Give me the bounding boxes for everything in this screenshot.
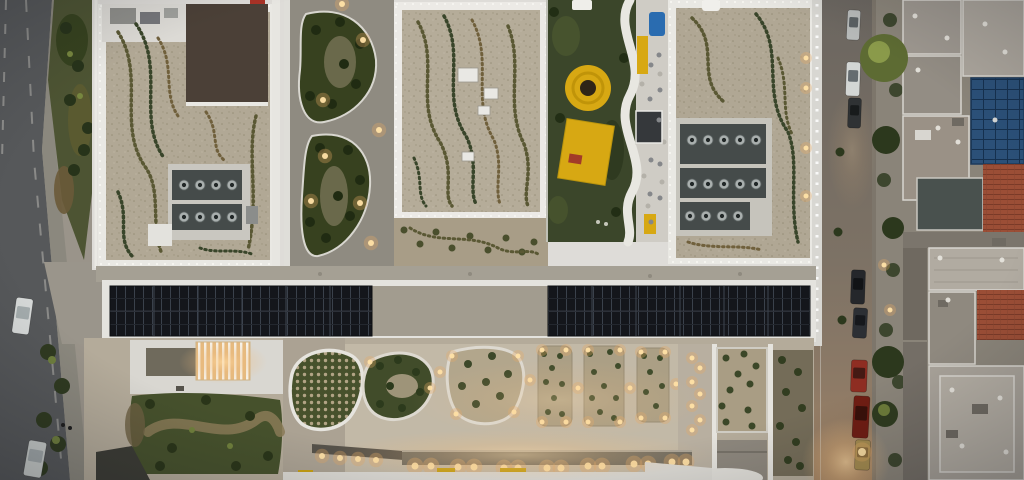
street-tree-3	[882, 217, 904, 239]
neighborhood-block-9	[929, 248, 1024, 290]
lawn-dry-patch	[125, 403, 145, 447]
street-tree-2	[872, 126, 900, 154]
street-car-dark-1	[847, 98, 861, 128]
middle-wing-south-garden	[394, 218, 548, 266]
facade-yellow-panel-top	[637, 36, 648, 74]
middle-wing-gravel-texture	[402, 10, 540, 212]
rooftop-skylight-box-1	[458, 68, 478, 82]
skylight-glow	[179, 340, 267, 384]
plaza-warm-glow	[410, 360, 710, 440]
neighborhood-roofbox-1	[952, 118, 964, 126]
hvac-fan	[733, 211, 743, 221]
neighborhood-block-2	[963, 0, 1024, 76]
neighborhood-roofbox-4	[972, 404, 988, 414]
street-tree-large-highlight	[868, 41, 890, 63]
rooftop-skylight-box-2	[484, 88, 498, 99]
roof-equipment-box-3	[164, 8, 178, 18]
brown-roof-section	[186, 4, 268, 104]
street-car-darkred	[852, 396, 870, 439]
street-car-black-1	[850, 270, 865, 304]
street-lamp-glow	[852, 442, 871, 461]
neighborhood-block-1	[903, 0, 961, 54]
neighborhood-tile-roof-lower	[977, 290, 1024, 340]
hvac-fan	[703, 135, 713, 145]
neighborhood-roof-hut	[915, 130, 931, 140]
hvac-fan	[703, 179, 713, 189]
hvac-fan	[735, 179, 745, 189]
hvac-fan	[227, 212, 237, 222]
hvac-fan	[719, 179, 729, 189]
hvac-fan	[701, 211, 711, 221]
hvac-fan	[211, 180, 221, 190]
play-circle-center	[580, 80, 596, 96]
hvac-fan	[751, 179, 761, 189]
rooftop-skylight-box-4	[462, 152, 474, 161]
courtyard-canopy	[572, 0, 592, 10]
neighborhood-block-3	[903, 56, 961, 114]
right-wing-canopy	[702, 0, 720, 11]
court-wall-west-2	[284, 0, 290, 266]
neighborhood-block-11	[903, 248, 927, 340]
west-green-blob-1	[56, 14, 88, 66]
street-car-red	[850, 360, 867, 393]
facade-dark-window	[636, 111, 662, 143]
court-wall-west	[272, 0, 280, 266]
rooftop-skylight-box-3	[478, 106, 490, 115]
terrace-strip	[96, 266, 816, 282]
street-car-silver	[846, 10, 861, 41]
neighborhood-roofbox-5	[946, 430, 958, 438]
east-wall-2	[768, 344, 773, 480]
hvac-fan	[179, 180, 189, 190]
solar-mid-concrete	[372, 286, 548, 336]
hvac-fan	[179, 212, 189, 222]
neighborhood-tile-roof-upper	[983, 164, 1024, 232]
hvac-fan	[195, 180, 205, 190]
aerial-photo: Aerial dusk view of a modern white build…	[0, 0, 1024, 480]
hvac-fan	[735, 135, 745, 145]
roof-equipment-box-2	[140, 12, 160, 24]
neighborhood-roofbox-2	[992, 238, 1006, 246]
roof-grate	[176, 386, 184, 391]
roof-equipment-box-1	[110, 8, 136, 24]
lawn-light-patch-2	[548, 196, 568, 224]
scene-canvas	[0, 0, 1024, 480]
hvac-fan	[719, 135, 729, 145]
brown-roof-edge	[186, 102, 268, 106]
hvac-fan	[227, 180, 237, 190]
roof-duct-box	[246, 206, 258, 224]
hvac-fan	[687, 135, 697, 145]
red-object-top-edge	[250, 0, 265, 4]
facade-blue-panel	[649, 12, 665, 36]
hvac-fan	[195, 212, 205, 222]
street-car-black-2	[852, 308, 868, 339]
street-tree-4	[872, 346, 904, 378]
hvac-fan	[717, 211, 727, 221]
neighborhood-dark-roof	[917, 178, 983, 230]
lawn-light-patch-1	[552, 16, 580, 56]
neighborhood-block-14	[903, 342, 927, 480]
neighborhood-block-12	[929, 292, 975, 364]
roof-hut	[148, 224, 172, 246]
hvac-fan	[685, 211, 695, 221]
hvac-fan	[751, 135, 761, 145]
street-tree-5-highlight	[878, 404, 890, 416]
hvac-fan	[687, 179, 697, 189]
neighborhood-pv-roof	[971, 78, 1024, 164]
hvac-fan	[211, 212, 221, 222]
street-car-white	[845, 62, 860, 96]
play-square-yellow	[558, 119, 615, 186]
